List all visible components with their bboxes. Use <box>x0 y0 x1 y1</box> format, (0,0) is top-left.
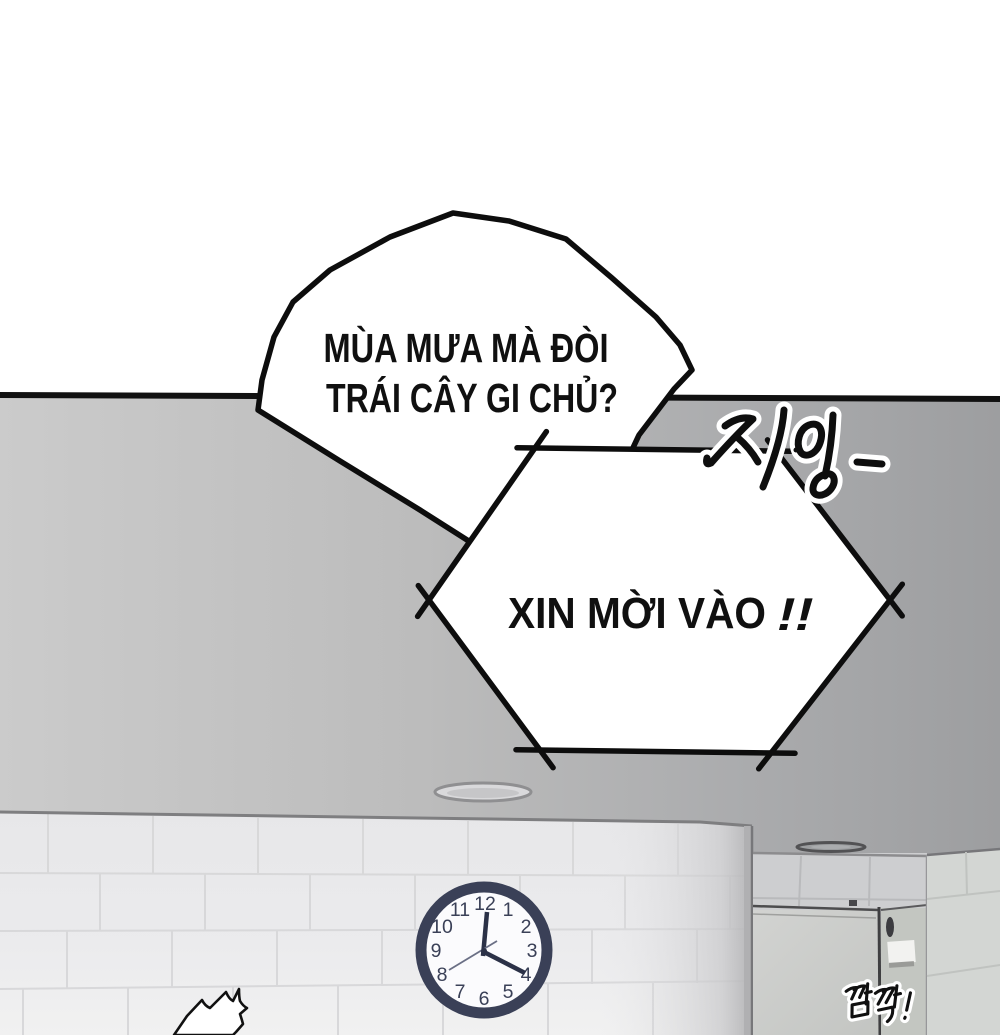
svg-text:11: 11 <box>450 899 470 921</box>
svg-text:6: 6 <box>479 988 490 1010</box>
svg-text:MÙA MƯA MÀ ĐÒI: MÙA MƯA MÀ ĐÒI <box>324 325 609 371</box>
svg-text:8: 8 <box>437 964 448 986</box>
svg-text:2: 2 <box>521 916 532 938</box>
svg-text:12: 12 <box>474 893 496 915</box>
svg-text:1: 1 <box>503 899 514 921</box>
svg-text:XIN MỜI VÀO: XIN MỜI VÀO <box>508 588 766 638</box>
svg-text:3: 3 <box>527 940 538 962</box>
svg-text:TRÁI CÂY GI CHỦ?: TRÁI CÂY GI CHỦ? <box>326 375 618 421</box>
svg-text:7: 7 <box>455 981 466 1003</box>
svg-text:4: 4 <box>521 964 532 986</box>
svg-text:5: 5 <box>503 981 514 1003</box>
svg-text:9: 9 <box>431 940 442 962</box>
